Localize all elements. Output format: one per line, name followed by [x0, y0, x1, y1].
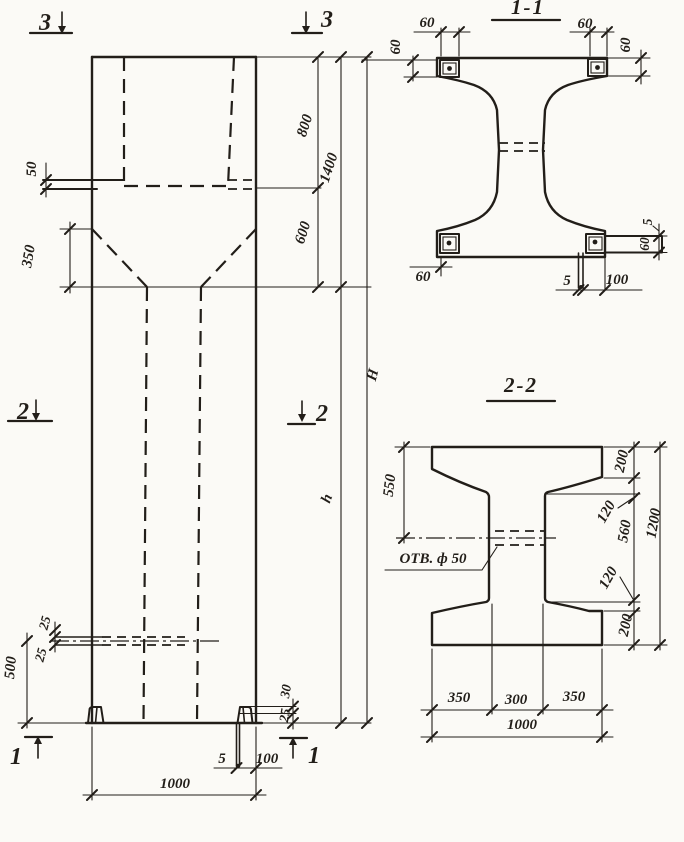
elevation-dim-labels: 50 350 800 1400 600 H h 25 25 500 30 25 … [2, 112, 383, 792]
marker-1-right: 1 [280, 737, 320, 769]
dim-tr-60: 60 [578, 16, 594, 32]
dim-head-1400: 1400 [317, 151, 342, 185]
dim-plate-5: 5 [563, 273, 571, 289]
marker-3-right: 3 [292, 7, 333, 34]
dim-550: 550 [381, 473, 400, 498]
corner-plates [440, 59, 662, 289]
marker-2-right-label: 2 [315, 401, 328, 427]
dim-bar-100: 100 [606, 272, 629, 288]
dim-neck-600: 600 [292, 219, 314, 246]
section-2-2: 2-2 ОТВ. ф 50 5 [381, 373, 667, 742]
marker-2-right: 2 [288, 401, 328, 427]
column-hidden-lines [50, 57, 256, 723]
dim-top-800: 800 [294, 112, 316, 139]
hole-label: ОТВ. ф 50 [400, 551, 467, 567]
dim-bl-60: 60 [416, 269, 432, 285]
drawing-sheet: 3 3 2 2 1 [0, 0, 684, 842]
dim-foot-25: 25 [276, 707, 293, 724]
hole-callout: ОТВ. ф 50 [385, 547, 497, 570]
elevation-view: 3 3 2 2 1 [2, 7, 383, 800]
dim-300: 300 [504, 692, 528, 708]
section-2-2-outline [396, 447, 602, 645]
section-2-2-dim-lines [395, 442, 667, 742]
dim-anchor-100: 100 [256, 751, 279, 767]
dim-tl-60: 60 [420, 15, 436, 31]
dim-slot-25a: 25 [35, 614, 53, 632]
dim-shaft-h: h [318, 492, 336, 505]
marker-1-right-label: 1 [308, 743, 320, 769]
dim-350-right: 350 [562, 689, 586, 705]
marker-3-right-label: 3 [320, 7, 333, 33]
column-outline [43, 57, 262, 768]
dim-taper-350: 350 [19, 243, 39, 269]
dim-120-bottom: 120 [596, 564, 621, 592]
dim-560: 560 [615, 518, 635, 543]
dim-anchor-5: 5 [218, 751, 226, 767]
section-1-1-title: 1-1 [511, 0, 545, 19]
elevation-dimension-lines [18, 57, 371, 800]
dim-foot-30: 30 [277, 683, 294, 700]
column-drawing: 3 3 2 2 1 [0, 0, 684, 842]
section-1-1-dim-labels: 60 60 60 60 60 5 60 5 100 [388, 15, 655, 289]
section-markers: 3 3 2 2 1 [8, 7, 333, 770]
dim-base-500: 500 [2, 655, 20, 679]
dim-1200: 1200 [644, 507, 665, 540]
dim-right-60: 60 [618, 37, 634, 53]
dim-120-top: 120 [594, 498, 619, 526]
marker-2-left: 2 [8, 399, 52, 425]
dim-350-left: 350 [447, 690, 471, 706]
dim-200-top: 200 [612, 448, 633, 475]
dim-200-bottom: 200 [616, 612, 637, 639]
section-1-1-dim-lines [362, 28, 667, 290]
dim-1000: 1000 [507, 717, 538, 733]
marker-1-left: 1 [10, 736, 52, 770]
dim-bar-gap-5: 5 [640, 218, 655, 225]
section-2-2-dim-labels: 550 200 120 560 1200 120 200 350 300 350… [381, 448, 665, 733]
section-1-1-outline [437, 58, 607, 257]
section-2-2-ticks [399, 442, 665, 742]
marker-3-left: 3 [30, 10, 72, 36]
dim-width-1000: 1000 [160, 776, 191, 792]
dim-ledge-50: 50 [24, 161, 40, 177]
marker-1-left-label: 1 [10, 744, 22, 770]
dim-left-60: 60 [388, 39, 404, 55]
section-1-1: 1-1 [362, 0, 667, 295]
section-1-1-ticks [408, 27, 664, 295]
dim-slot-25b: 25 [31, 646, 49, 664]
section-2-2-title: 2-2 [503, 373, 538, 397]
dim-bar-60: 60 [637, 237, 652, 251]
